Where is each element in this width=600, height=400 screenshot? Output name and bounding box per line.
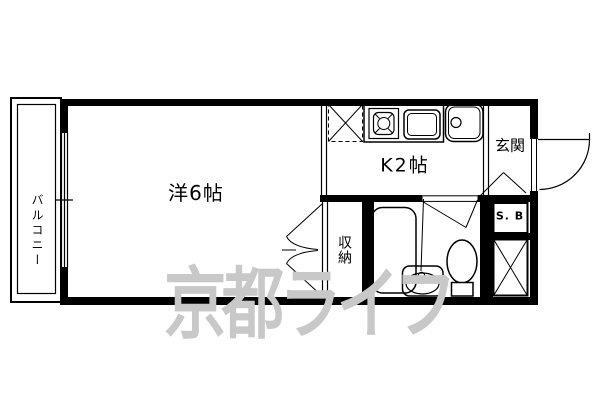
kitchen-counter <box>364 105 444 143</box>
kitchen-entrance-partition <box>484 106 489 195</box>
shoe-box-label: S. B <box>496 211 524 222</box>
fridge-space-icon <box>329 105 363 142</box>
entrance-inner-door-icon <box>480 173 526 197</box>
bathroom-door-opening <box>422 196 478 202</box>
living-room-label: 洋6帖 <box>168 183 224 203</box>
balcony-window-icon <box>56 133 73 267</box>
balcony-label: バルコニー <box>31 194 43 269</box>
wall-right-lower <box>530 191 538 305</box>
bathroom-door-icon <box>423 200 478 228</box>
closet-label: 収納 <box>337 235 351 265</box>
meter-box-icon <box>494 240 528 296</box>
wall-kitchen-bottom-left <box>320 195 422 202</box>
walls <box>60 99 538 305</box>
stove-icon <box>369 109 399 139</box>
wall-bathroom-right <box>480 202 493 297</box>
entrance-door-icon <box>532 133 590 191</box>
closet-doors-icon <box>282 202 328 297</box>
floorplan-linework <box>0 0 600 400</box>
room-kitchen-partition <box>322 106 327 195</box>
bathroom <box>369 196 479 297</box>
wall-top <box>60 99 538 106</box>
bathtub-icon <box>372 208 417 294</box>
wall-kitchen-bottom-right <box>478 195 538 202</box>
kitchen-sink-icon <box>404 110 440 139</box>
entrance-label: 玄関 <box>495 139 525 154</box>
toilet-icon <box>447 240 477 296</box>
shower-line-icon <box>421 199 424 271</box>
wall-bottom <box>60 297 538 305</box>
wall-right-upper <box>530 99 538 139</box>
washbasin-icon <box>446 104 484 142</box>
kitchen-label: K2帖 <box>380 157 430 176</box>
floorplan: バルコニー 洋6帖 K2帖 玄関 収納 S. B 京都ライフ <box>0 0 600 400</box>
bath-sink-icon <box>403 266 444 296</box>
